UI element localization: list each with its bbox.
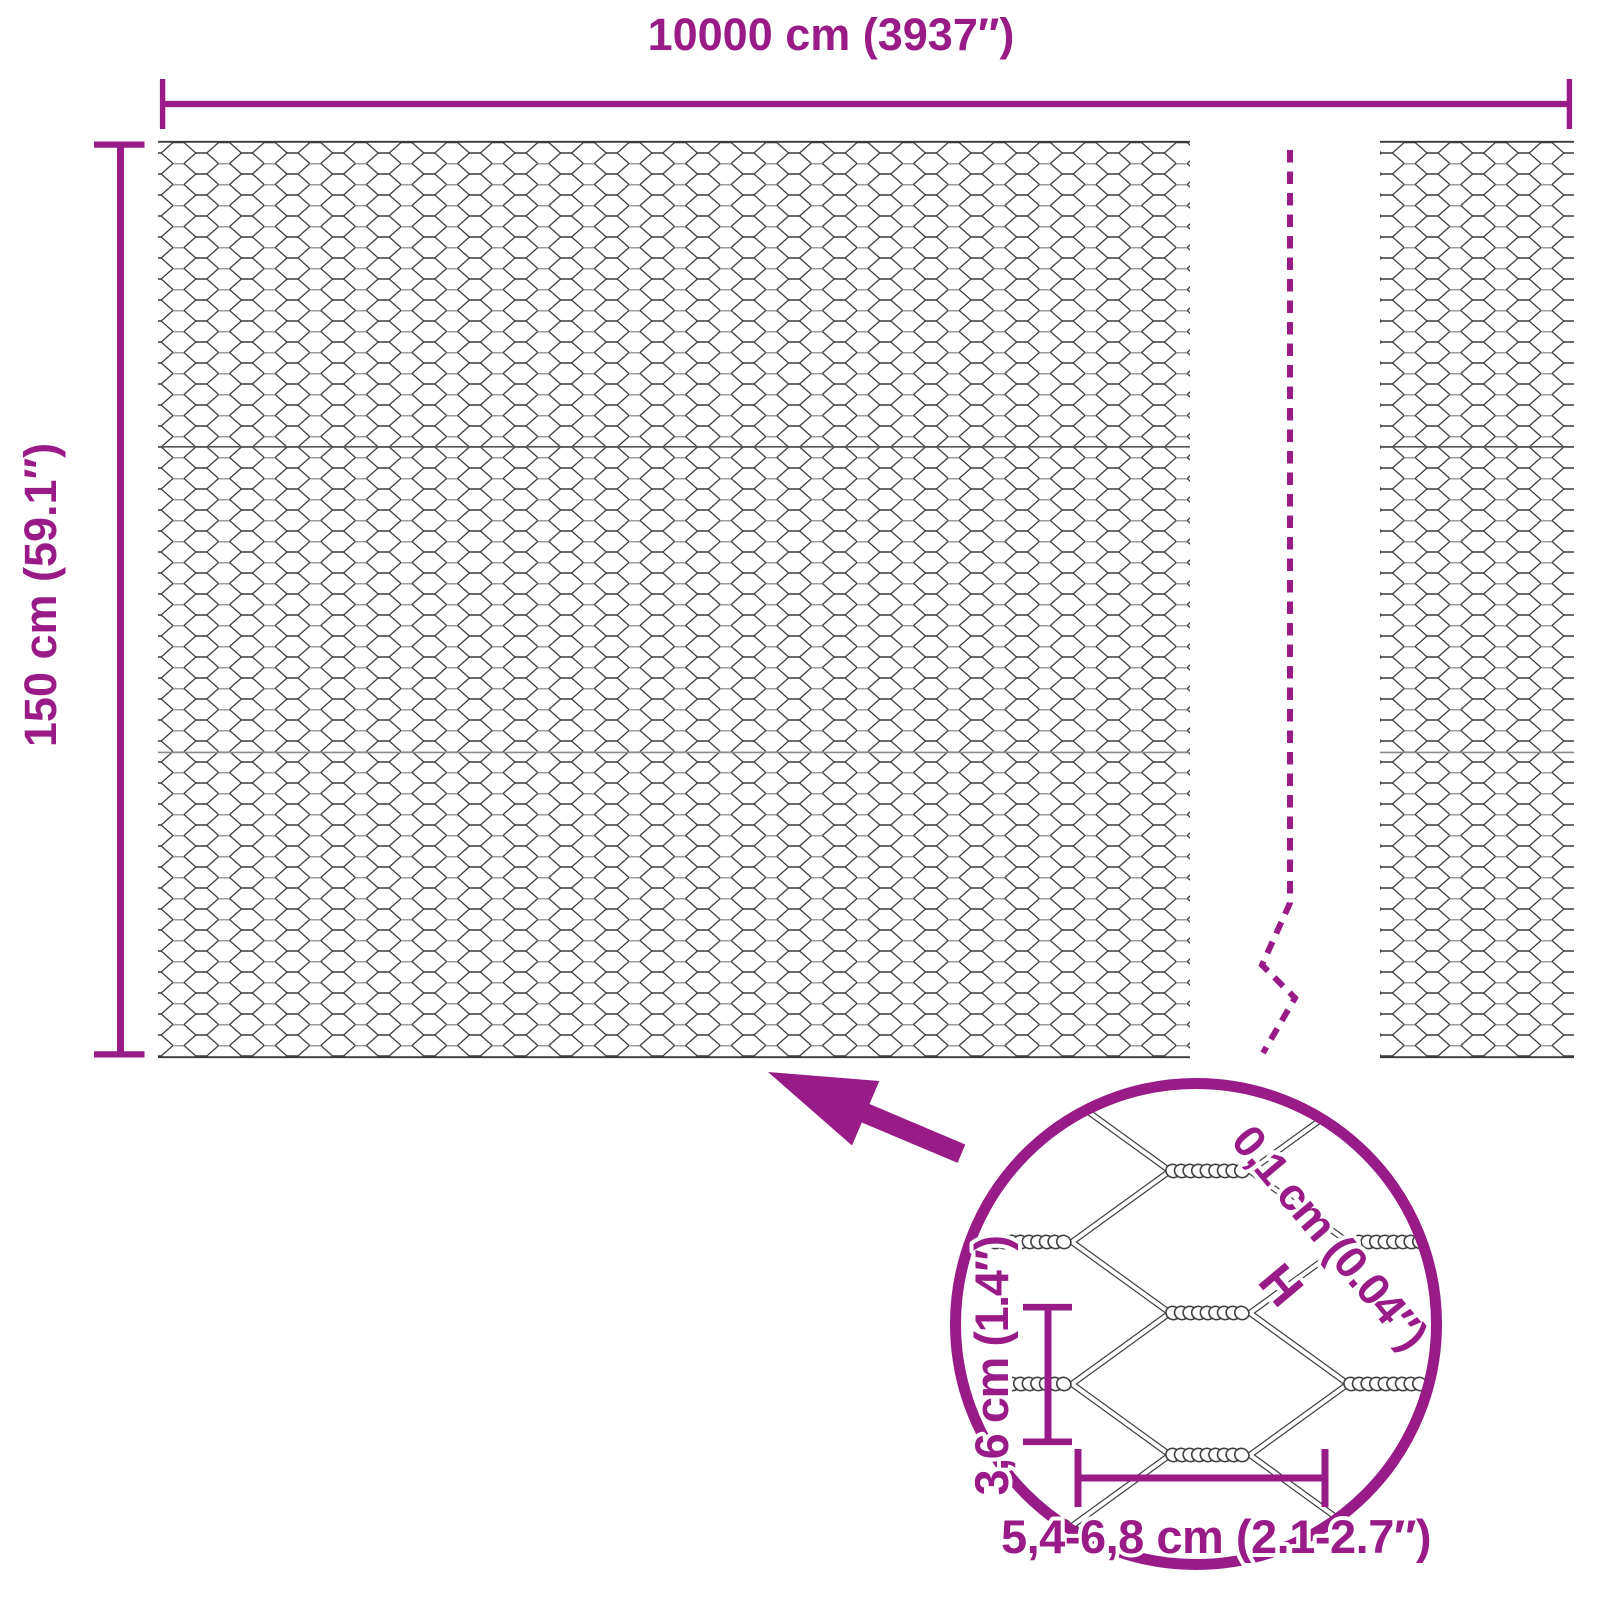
svg-text:5,4-6,8 cm (2.1-2.7″): 5,4-6,8 cm (2.1-2.7″) xyxy=(1001,1510,1431,1563)
svg-text:150 cm (59.1″): 150 cm (59.1″) xyxy=(15,443,66,747)
svg-text:3,6 cm (1.4″): 3,6 cm (1.4″) xyxy=(965,1236,1018,1495)
svg-text:10000 cm (3937″): 10000 cm (3937″) xyxy=(648,9,1015,60)
